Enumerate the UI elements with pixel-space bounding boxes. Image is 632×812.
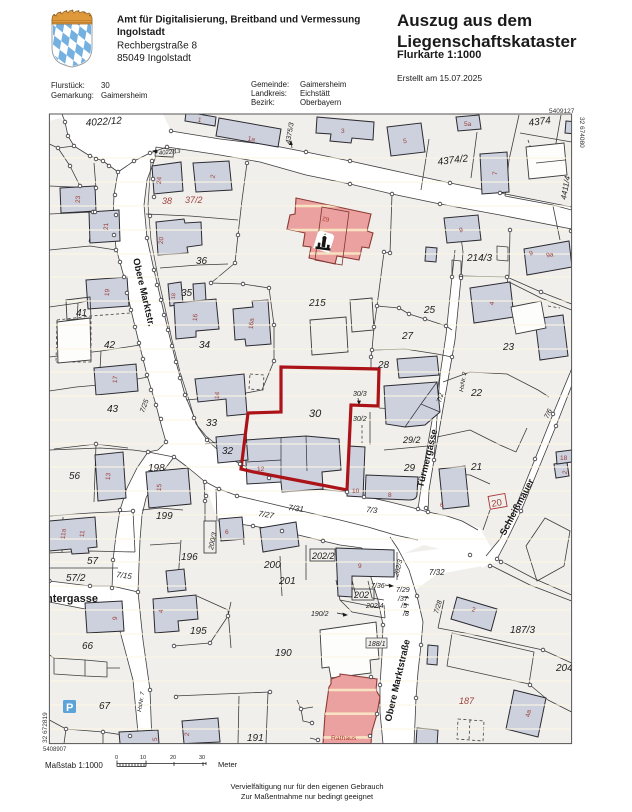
svg-text:20: 20 <box>158 236 166 244</box>
svg-text:9: 9 <box>358 563 362 570</box>
svg-text:11: 11 <box>79 530 87 538</box>
svg-text:7/3: 7/3 <box>366 505 379 515</box>
svg-text:29: 29 <box>403 463 416 474</box>
svg-text:195: 195 <box>190 626 207 637</box>
svg-text:21: 21 <box>103 222 110 230</box>
svg-text:32 674080: 32 674080 <box>578 117 585 148</box>
svg-text:htergasse: htergasse <box>46 593 98 605</box>
svg-text:30: 30 <box>309 408 322 420</box>
svg-text:27: 27 <box>401 331 414 342</box>
svg-text:190: 190 <box>275 648 292 659</box>
svg-text:187: 187 <box>459 696 475 706</box>
svg-text:62: 62 <box>321 215 329 223</box>
svg-text:7/29: 7/29 <box>396 587 410 594</box>
svg-text:32: 32 <box>222 446 234 457</box>
svg-text:214/3: 214/3 <box>466 253 492 264</box>
svg-text:P: P <box>66 702 73 714</box>
svg-text:28: 28 <box>377 360 390 371</box>
svg-text:37/2: 37/2 <box>185 195 203 205</box>
svg-text:57/2: 57/2 <box>66 573 86 584</box>
svg-text:3: 3 <box>341 128 345 135</box>
svg-text:/37: /37 <box>397 596 409 603</box>
svg-text:188/1: 188/1 <box>368 641 386 648</box>
svg-text:29/2: 29/2 <box>402 435 421 445</box>
svg-text:16a: 16a <box>248 318 256 330</box>
svg-text:0: 0 <box>115 755 118 761</box>
svg-text:10: 10 <box>140 755 146 761</box>
svg-text:204: 204 <box>555 663 573 674</box>
svg-text:202: 202 <box>353 590 369 600</box>
svg-text:196: 196 <box>181 552 198 563</box>
svg-text:30: 30 <box>199 755 205 761</box>
svg-text:22: 22 <box>470 388 483 399</box>
svg-text:14: 14 <box>214 391 222 399</box>
svg-text:10: 10 <box>352 488 360 495</box>
svg-text:190/2: 190/2 <box>311 611 329 618</box>
svg-text:Gaimersheim: Gaimersheim <box>101 91 147 100</box>
svg-text:5a: 5a <box>464 121 472 128</box>
svg-text:20: 20 <box>170 755 176 761</box>
svg-text:25: 25 <box>423 305 436 316</box>
svg-text:56: 56 <box>69 471 81 482</box>
svg-text:Rathaus: Rathaus <box>331 735 357 742</box>
svg-text:Vervielfältigung nur für den e: Vervielfältigung nur für den eigenen Geb… <box>230 782 383 791</box>
svg-text:30/3: 30/3 <box>353 391 367 398</box>
svg-text:Erstellt am 15.07.2025: Erstellt am 15.07.2025 <box>397 73 482 83</box>
svg-text:17: 17 <box>112 375 120 383</box>
svg-text:Gaimersheim: Gaimersheim <box>300 80 346 89</box>
svg-text:Auszug aus dem: Auszug aus dem <box>397 11 532 30</box>
svg-text:30: 30 <box>101 81 110 90</box>
svg-text:20: 20 <box>491 497 503 510</box>
svg-text:43: 43 <box>107 404 119 415</box>
svg-text:Amt für Digitalisierung, Breit: Amt für Digitalisierung, Breitband und V… <box>117 15 360 26</box>
svg-text:Oberbayern: Oberbayern <box>300 98 341 107</box>
svg-text:201: 201 <box>278 576 296 587</box>
svg-text:21: 21 <box>470 462 482 473</box>
svg-text:6: 6 <box>440 502 444 509</box>
svg-text:66: 66 <box>82 641 94 652</box>
svg-text:Flurstück:: Flurstück: <box>51 81 85 90</box>
svg-text:5408907: 5408907 <box>43 747 67 753</box>
svg-text:Bezirk:: Bezirk: <box>251 98 275 107</box>
svg-text:215: 215 <box>308 298 326 309</box>
svg-text:Eichstätt: Eichstätt <box>300 89 331 98</box>
svg-text:57: 57 <box>87 556 99 567</box>
svg-text:24: 24 <box>156 176 164 184</box>
svg-text:187/3: 187/3 <box>510 625 535 636</box>
svg-text:6: 6 <box>225 529 229 536</box>
svg-text:199: 199 <box>156 511 173 522</box>
svg-text:34: 34 <box>199 340 211 351</box>
svg-text:41: 41 <box>76 308 87 319</box>
svg-text:202/2: 202/2 <box>311 551 335 561</box>
svg-text:33: 33 <box>206 418 218 429</box>
svg-text:Ingolstadt: Ingolstadt <box>117 27 165 38</box>
svg-text:36: 36 <box>196 256 208 267</box>
svg-text:16: 16 <box>192 313 200 321</box>
svg-text:Gemeinde:: Gemeinde: <box>251 80 289 89</box>
svg-text:Maßstab 1:1000: Maßstab 1:1000 <box>45 761 103 770</box>
svg-text:200: 200 <box>263 560 281 571</box>
svg-text:7/32: 7/32 <box>429 568 445 577</box>
svg-text:15: 15 <box>156 483 164 491</box>
svg-text:Meter: Meter <box>218 760 238 769</box>
svg-text:Zur Maßentnahme nur bedingt ge: Zur Maßentnahme nur bedingt geeignet <box>241 792 374 801</box>
svg-text:202/4: 202/4 <box>365 603 384 610</box>
svg-text:19: 19 <box>104 288 112 296</box>
svg-text:7/31: 7/31 <box>288 503 305 514</box>
svg-text:42: 42 <box>104 340 116 351</box>
svg-text:Landkreis:: Landkreis: <box>251 89 287 98</box>
svg-text:18: 18 <box>171 293 178 300</box>
svg-text:Flurkarte 1:1000: Flurkarte 1:1000 <box>397 49 481 61</box>
svg-text:35: 35 <box>181 288 193 299</box>
svg-text:198: 198 <box>148 463 165 474</box>
svg-text:30/2: 30/2 <box>353 416 367 423</box>
svg-text:18: 18 <box>560 455 568 462</box>
svg-text:12: 12 <box>257 466 265 473</box>
svg-text:23: 23 <box>75 195 82 203</box>
svg-text:85049 Ingolstadt: 85049 Ingolstadt <box>117 53 191 64</box>
svg-text:8: 8 <box>388 492 392 499</box>
svg-text:191: 191 <box>247 733 264 744</box>
svg-text:13: 13 <box>105 472 113 480</box>
svg-text:23: 23 <box>502 342 515 353</box>
svg-text:67: 67 <box>99 701 111 712</box>
svg-text:38: 38 <box>162 196 172 206</box>
svg-text:Rechbergstraße 8: Rechbergstraße 8 <box>117 41 197 52</box>
svg-text:Gemarkung:: Gemarkung: <box>51 91 94 100</box>
svg-text:11a: 11a <box>60 528 68 539</box>
svg-text:32 672819: 32 672819 <box>42 712 49 743</box>
